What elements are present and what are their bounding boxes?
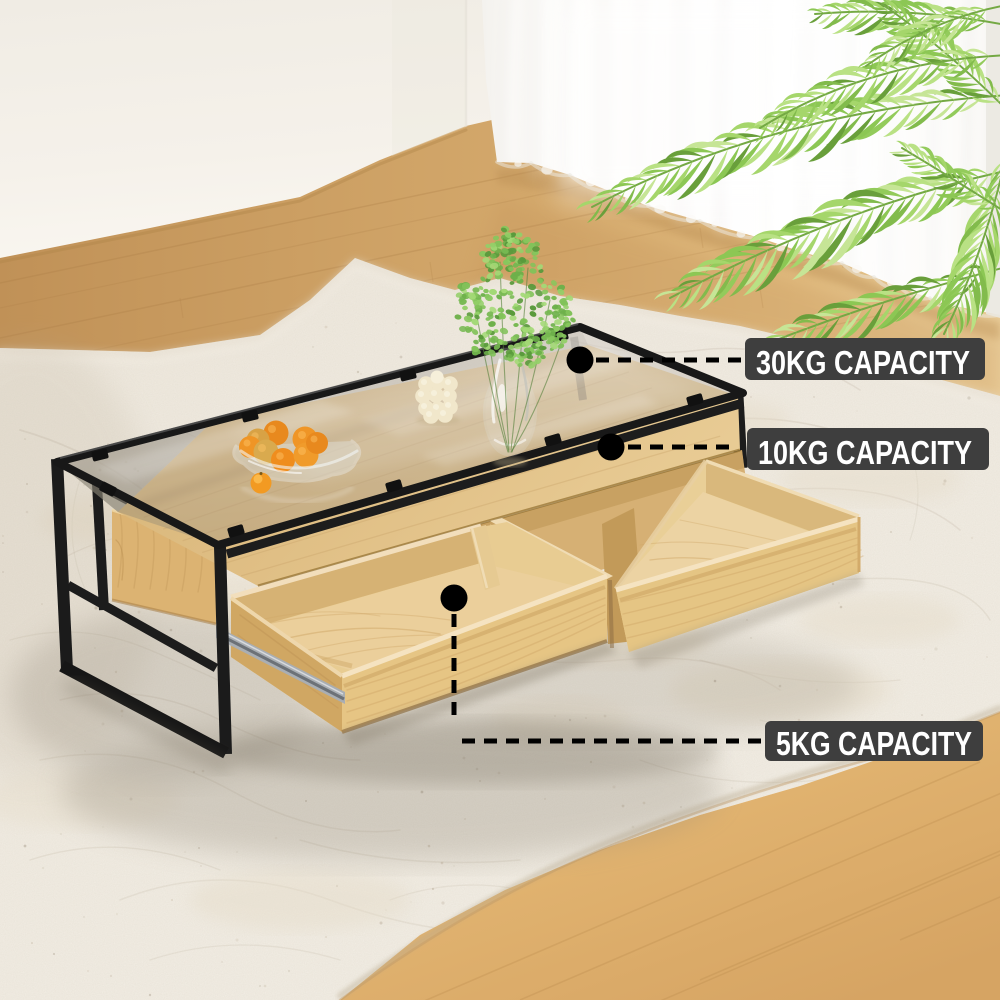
svg-text:10KG CAPACITY: 10KG CAPACITY	[758, 434, 972, 471]
svg-text:30KG CAPACITY: 30KG CAPACITY	[756, 344, 970, 381]
svg-text:5KG CAPACITY: 5KG CAPACITY	[776, 725, 972, 762]
